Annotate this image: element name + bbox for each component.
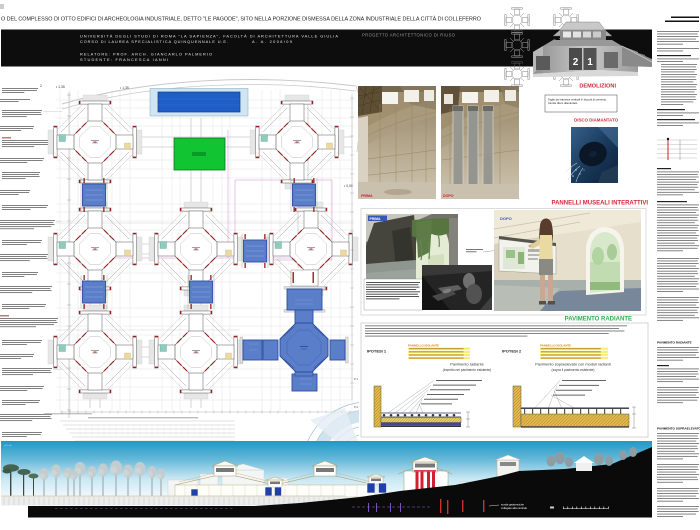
svg-text:O DEL COMPLESSO DI OTTO EDIFIC: O DEL COMPLESSO DI OTTO EDIFICI DI ARCHE…: [1, 16, 481, 23]
svg-text:PRIMA: PRIMA: [361, 194, 373, 198]
svg-text:SEZ. AA: SEZ. AA: [4, 444, 12, 447]
svg-text:PROGETTO ARCHITETTONICO DI RIU: PROGETTO ARCHITETTONICO DI RIUSO: [362, 33, 456, 38]
svg-text:IPOTESI 1: IPOTESI 1: [367, 349, 387, 354]
svg-text:2: 2: [573, 57, 579, 68]
svg-text:P.2: P.2: [354, 405, 358, 409]
svg-text:• 1,35: • 1,35: [120, 86, 129, 90]
svg-text:PANNELLI MUSEALI INTERATTIVI: PANNELLI MUSEALI INTERATTIVI: [552, 201, 649, 207]
svg-text:IPOTESI 2: IPOTESI 2: [502, 349, 522, 354]
svg-text:DOPO: DOPO: [500, 216, 512, 221]
svg-text:PAVIMENTO RADIANTE: PAVIMENTO RADIANTE: [657, 341, 692, 345]
svg-text:(inserito nel pavimento esiste: (inserito nel pavimento esistente): [443, 368, 491, 372]
svg-text:CORSO DI LAUREA SPECIALISTICA: CORSO DI LAUREA SPECIALISTICA QUINQUENNA…: [80, 39, 228, 44]
svg-text:PANNELLO ISOLANTE: PANNELLO ISOLANTE: [540, 344, 571, 348]
svg-text:2: 2: [40, 84, 42, 88]
svg-text:Taglio dei tramezzi verticali: Taglio dei tramezzi verticali in blocchi…: [548, 98, 607, 102]
svg-text:1: 1: [587, 57, 593, 68]
svg-text:RELATORE: PROF. ARCH. GIANCARL: RELATORE: PROF. ARCH. GIANCARLO PALMERIO: [80, 52, 212, 57]
svg-text:Pavimento radiante: Pavimento radiante: [450, 362, 484, 367]
svg-text:• 0,00: • 0,00: [344, 184, 353, 188]
svg-text:PANNELLO ISOLANTE: PANNELLO ISOLANTE: [408, 344, 439, 348]
svg-text:collegate alla centrale: collegate alla centrale: [501, 506, 528, 510]
svg-text:tramite disco diamantato.: tramite disco diamantato.: [548, 101, 578, 105]
svg-text:sonde geotermiche: sonde geotermiche: [501, 503, 524, 507]
svg-text:Pavimento sopraelevato con mod: Pavimento sopraelevato con moduli radian…: [535, 362, 611, 367]
svg-text:DISCO DIAMANTATO: DISCO DIAMANTATO: [574, 118, 618, 123]
svg-text:• 1,35: • 1,35: [56, 85, 65, 89]
svg-text:PAVIMENTO SOPRAELEVATO: PAVIMENTO SOPRAELEVATO: [657, 427, 700, 431]
svg-text:(sopra il pavimento esistente): (sopra il pavimento esistente): [551, 368, 594, 372]
svg-text:DOPO: DOPO: [443, 194, 454, 198]
svg-text:UNIVERSITÀ DEGLI STUDI DI ROMA: UNIVERSITÀ DEGLI STUDI DI ROMA "LA SAPIE…: [80, 34, 338, 39]
svg-text:DEMOLIZIONI: DEMOLIZIONI: [579, 84, 616, 90]
svg-text:PAVIMENTO RADIANTE: PAVIMENTO RADIANTE: [565, 317, 632, 323]
svg-text:PRIMA: PRIMA: [370, 217, 381, 221]
svg-text:STUDENTE: FRANCESCA IANNI: STUDENTE: FRANCESCA IANNI: [80, 57, 168, 62]
svg-text:P.1: P.1: [354, 377, 358, 381]
